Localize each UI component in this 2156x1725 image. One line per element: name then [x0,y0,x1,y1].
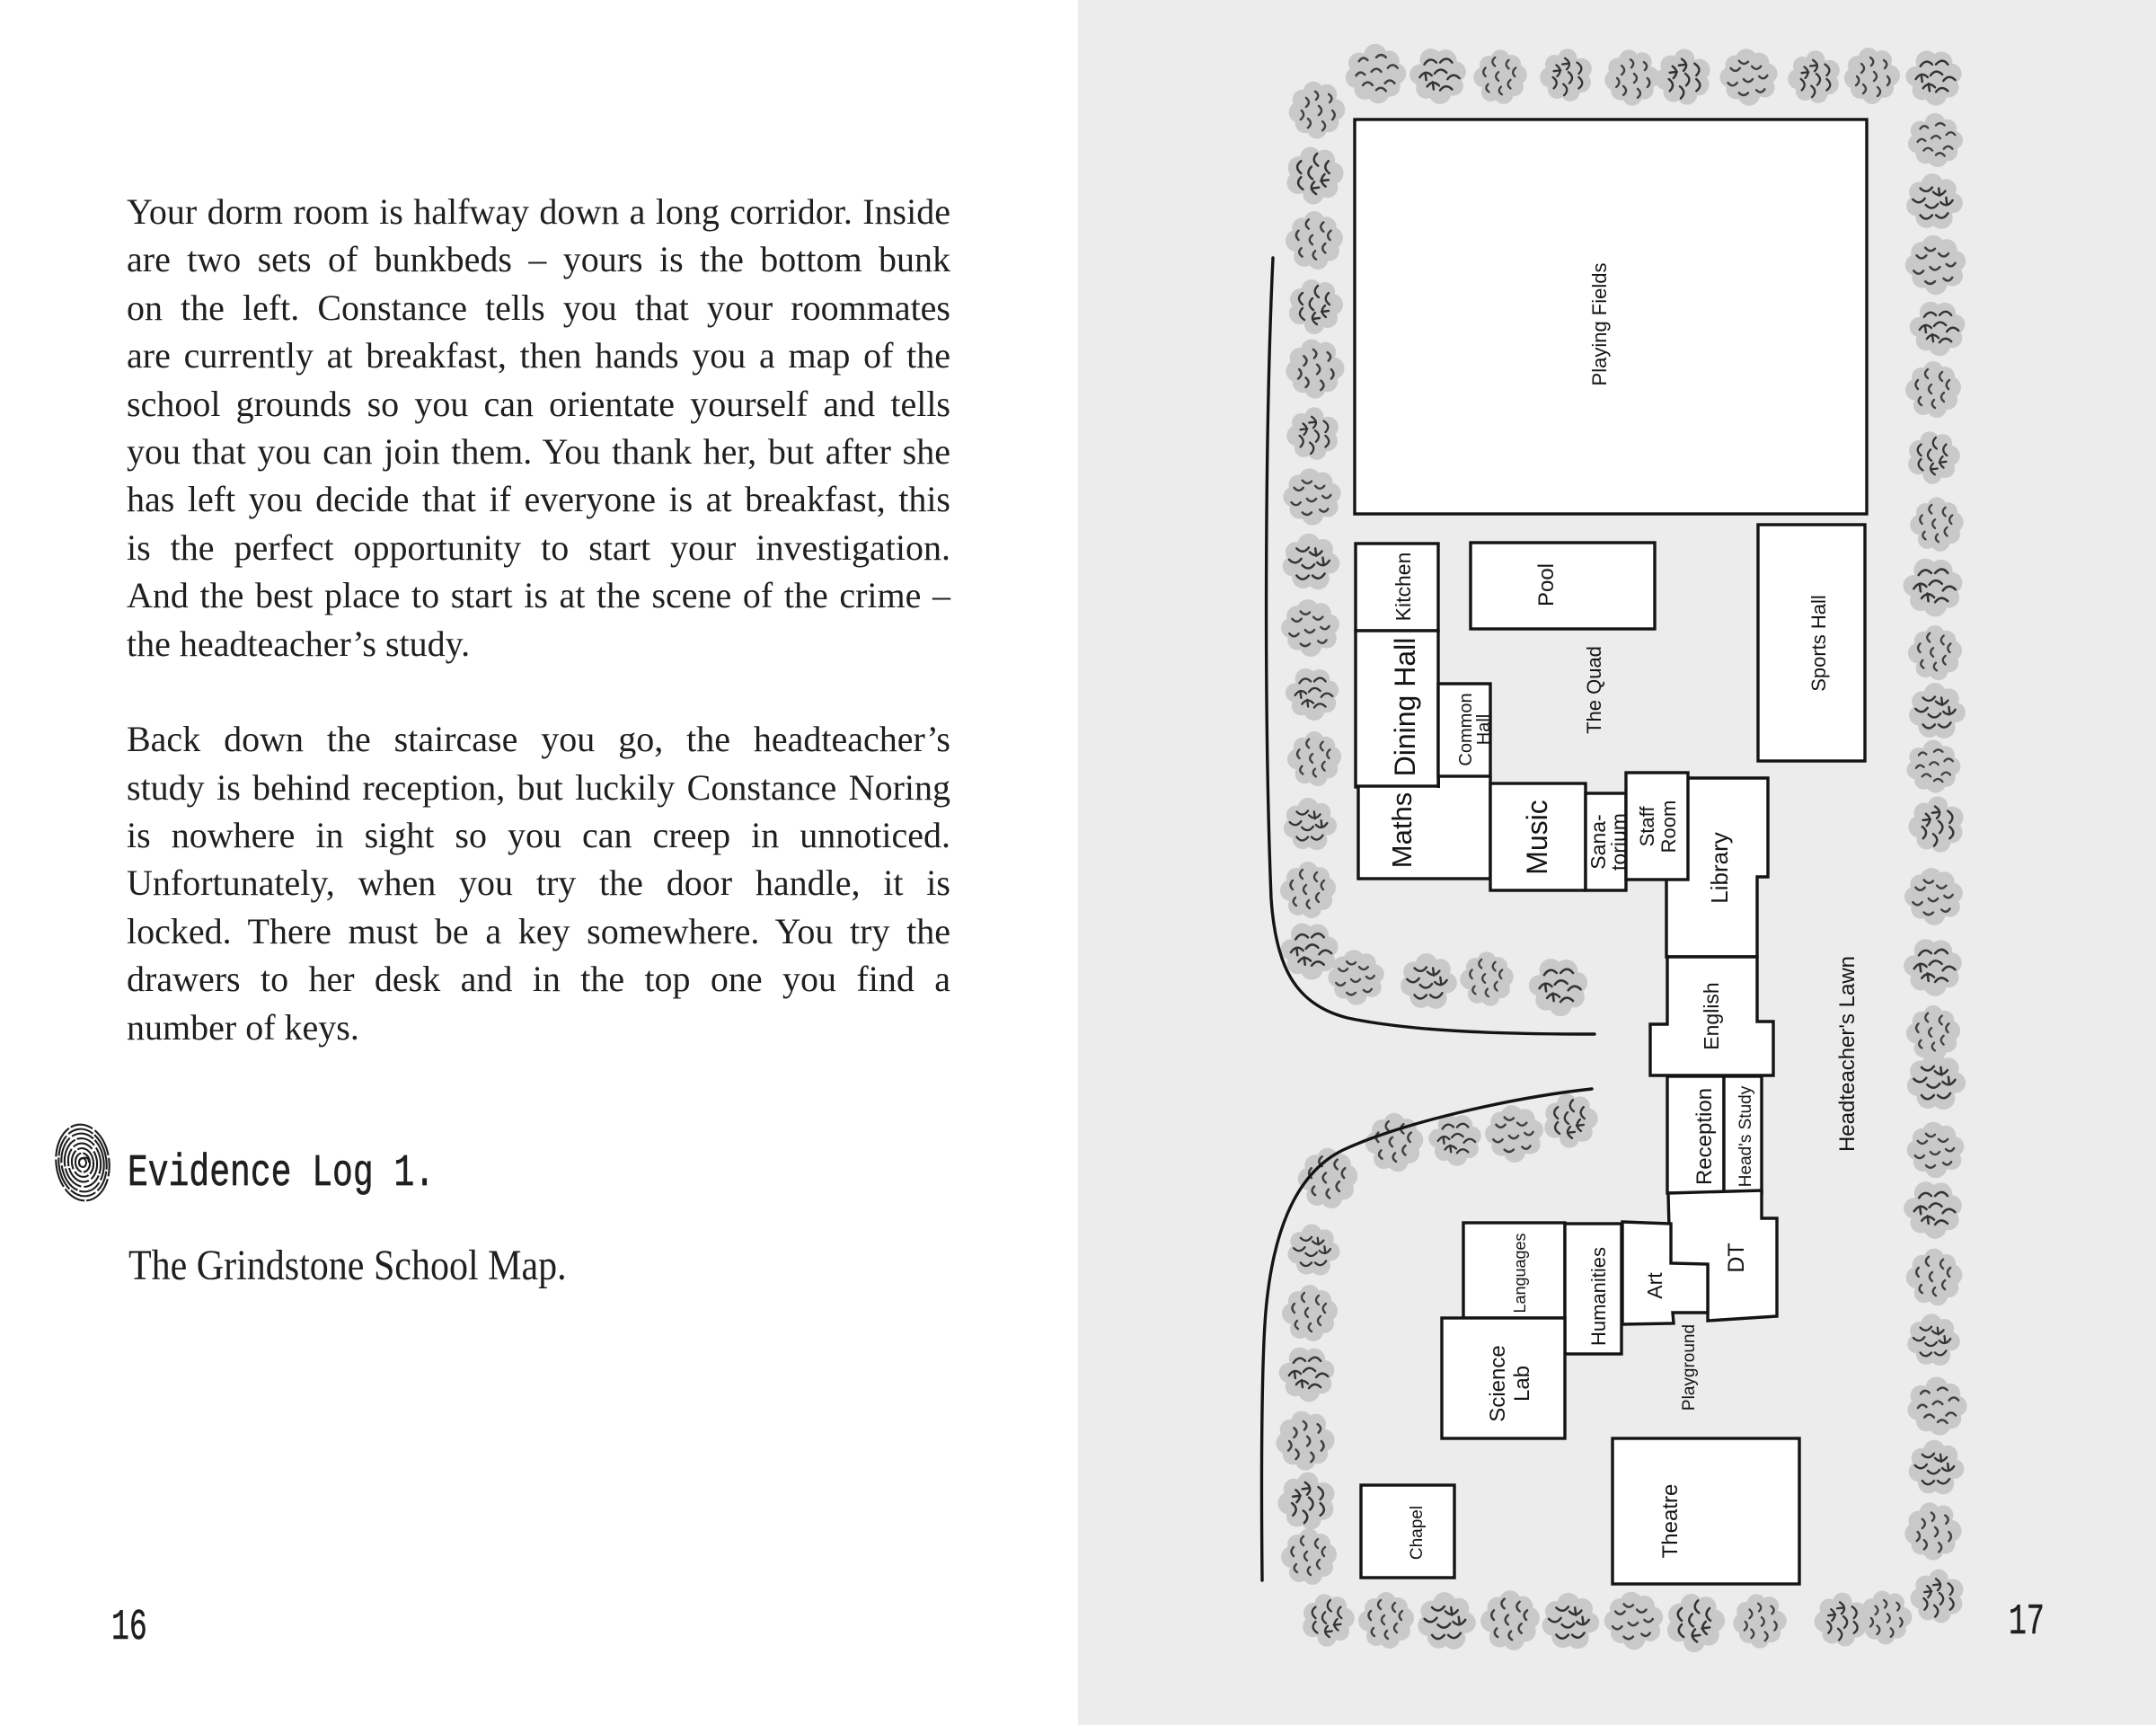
svg-text:Library: Library [1706,832,1733,903]
svg-text:Art: Art [1643,1272,1666,1299]
svg-text:The Quad: The Quad [1583,646,1605,734]
svg-text:Playground: Playground [1680,1324,1699,1411]
svg-text:Chapel: Chapel [1408,1506,1427,1560]
svg-text:Sana-torium: Sana-torium [1586,813,1630,871]
svg-text:Dining Hall: Dining Hall [1389,638,1421,777]
svg-text:Theatre: Theatre [1658,1484,1683,1559]
svg-text:Maths: Maths [1386,792,1418,868]
svg-text:Pool: Pool [1534,563,1559,606]
svg-text:Sports Hall: Sports Hall [1807,595,1830,692]
svg-text:Kitchen: Kitchen [1392,553,1415,622]
svg-text:Music: Music [1521,800,1553,875]
svg-text:English: English [1700,982,1723,1049]
svg-text:StaffRoom: StaffRoom [1636,801,1680,854]
svg-text:Reception: Reception [1692,1088,1717,1185]
svg-text:DT: DT [1724,1243,1749,1272]
svg-text:Head's Study: Head's Study [1736,1085,1755,1187]
svg-text:Humanities: Humanities [1587,1247,1610,1346]
svg-text:Playing Fields: Playing Fields [1588,263,1611,386]
svg-text:Headteacher's Lawn: Headteacher's Lawn [1835,956,1860,1152]
svg-text:Languages: Languages [1511,1233,1529,1313]
